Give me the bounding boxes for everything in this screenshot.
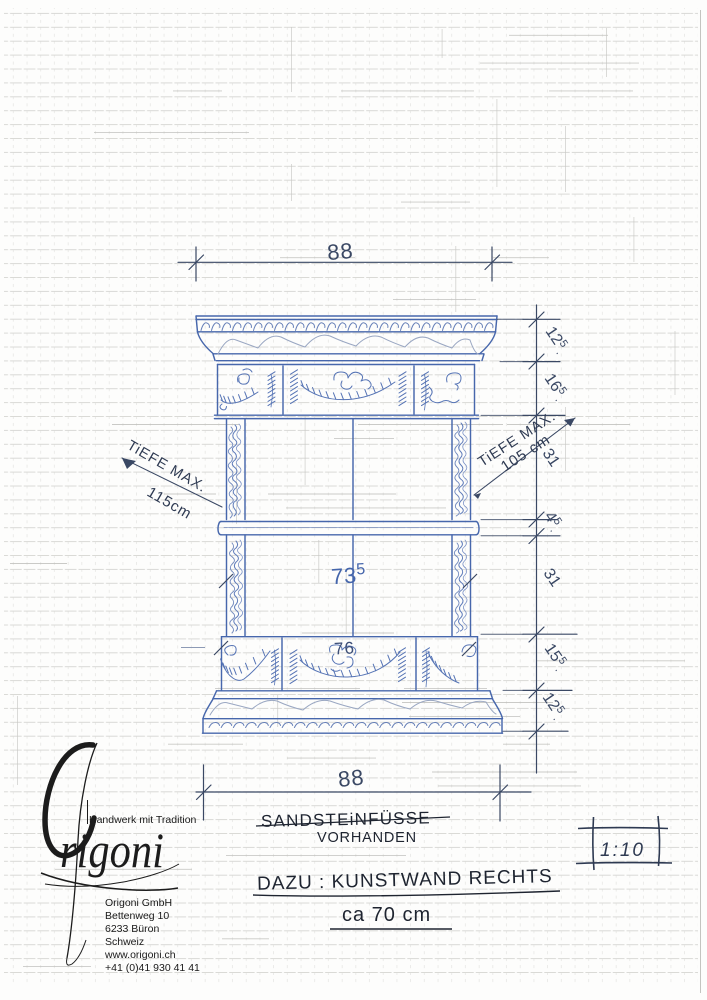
svg-text:Origoni GmbH: Origoni GmbH xyxy=(105,897,172,909)
svg-text:1:10: 1:10 xyxy=(600,840,645,861)
svg-text:+41 (0)41 930 41 41: +41 (0)41 930 41 41 xyxy=(105,962,200,974)
svg-text:rigoni: rigoni xyxy=(60,824,164,879)
svg-text:76: 76 xyxy=(333,638,355,658)
svg-text:VORHANDEN: VORHANDEN xyxy=(317,830,417,846)
svg-text:Schweiz: Schweiz xyxy=(105,936,144,948)
svg-text:ca 70 cm: ca 70 cm xyxy=(342,904,431,926)
svg-text:www.origoni.ch: www.origoni.ch xyxy=(104,949,176,961)
svg-text:88: 88 xyxy=(337,764,366,792)
svg-text:Bettenweg 10: Bettenweg 10 xyxy=(105,910,169,922)
svg-text:6233 Büron: 6233 Büron xyxy=(105,923,159,935)
svg-text:Handwerk mit Tradition: Handwerk mit Tradition xyxy=(89,814,197,826)
svg-text:88: 88 xyxy=(326,238,355,265)
